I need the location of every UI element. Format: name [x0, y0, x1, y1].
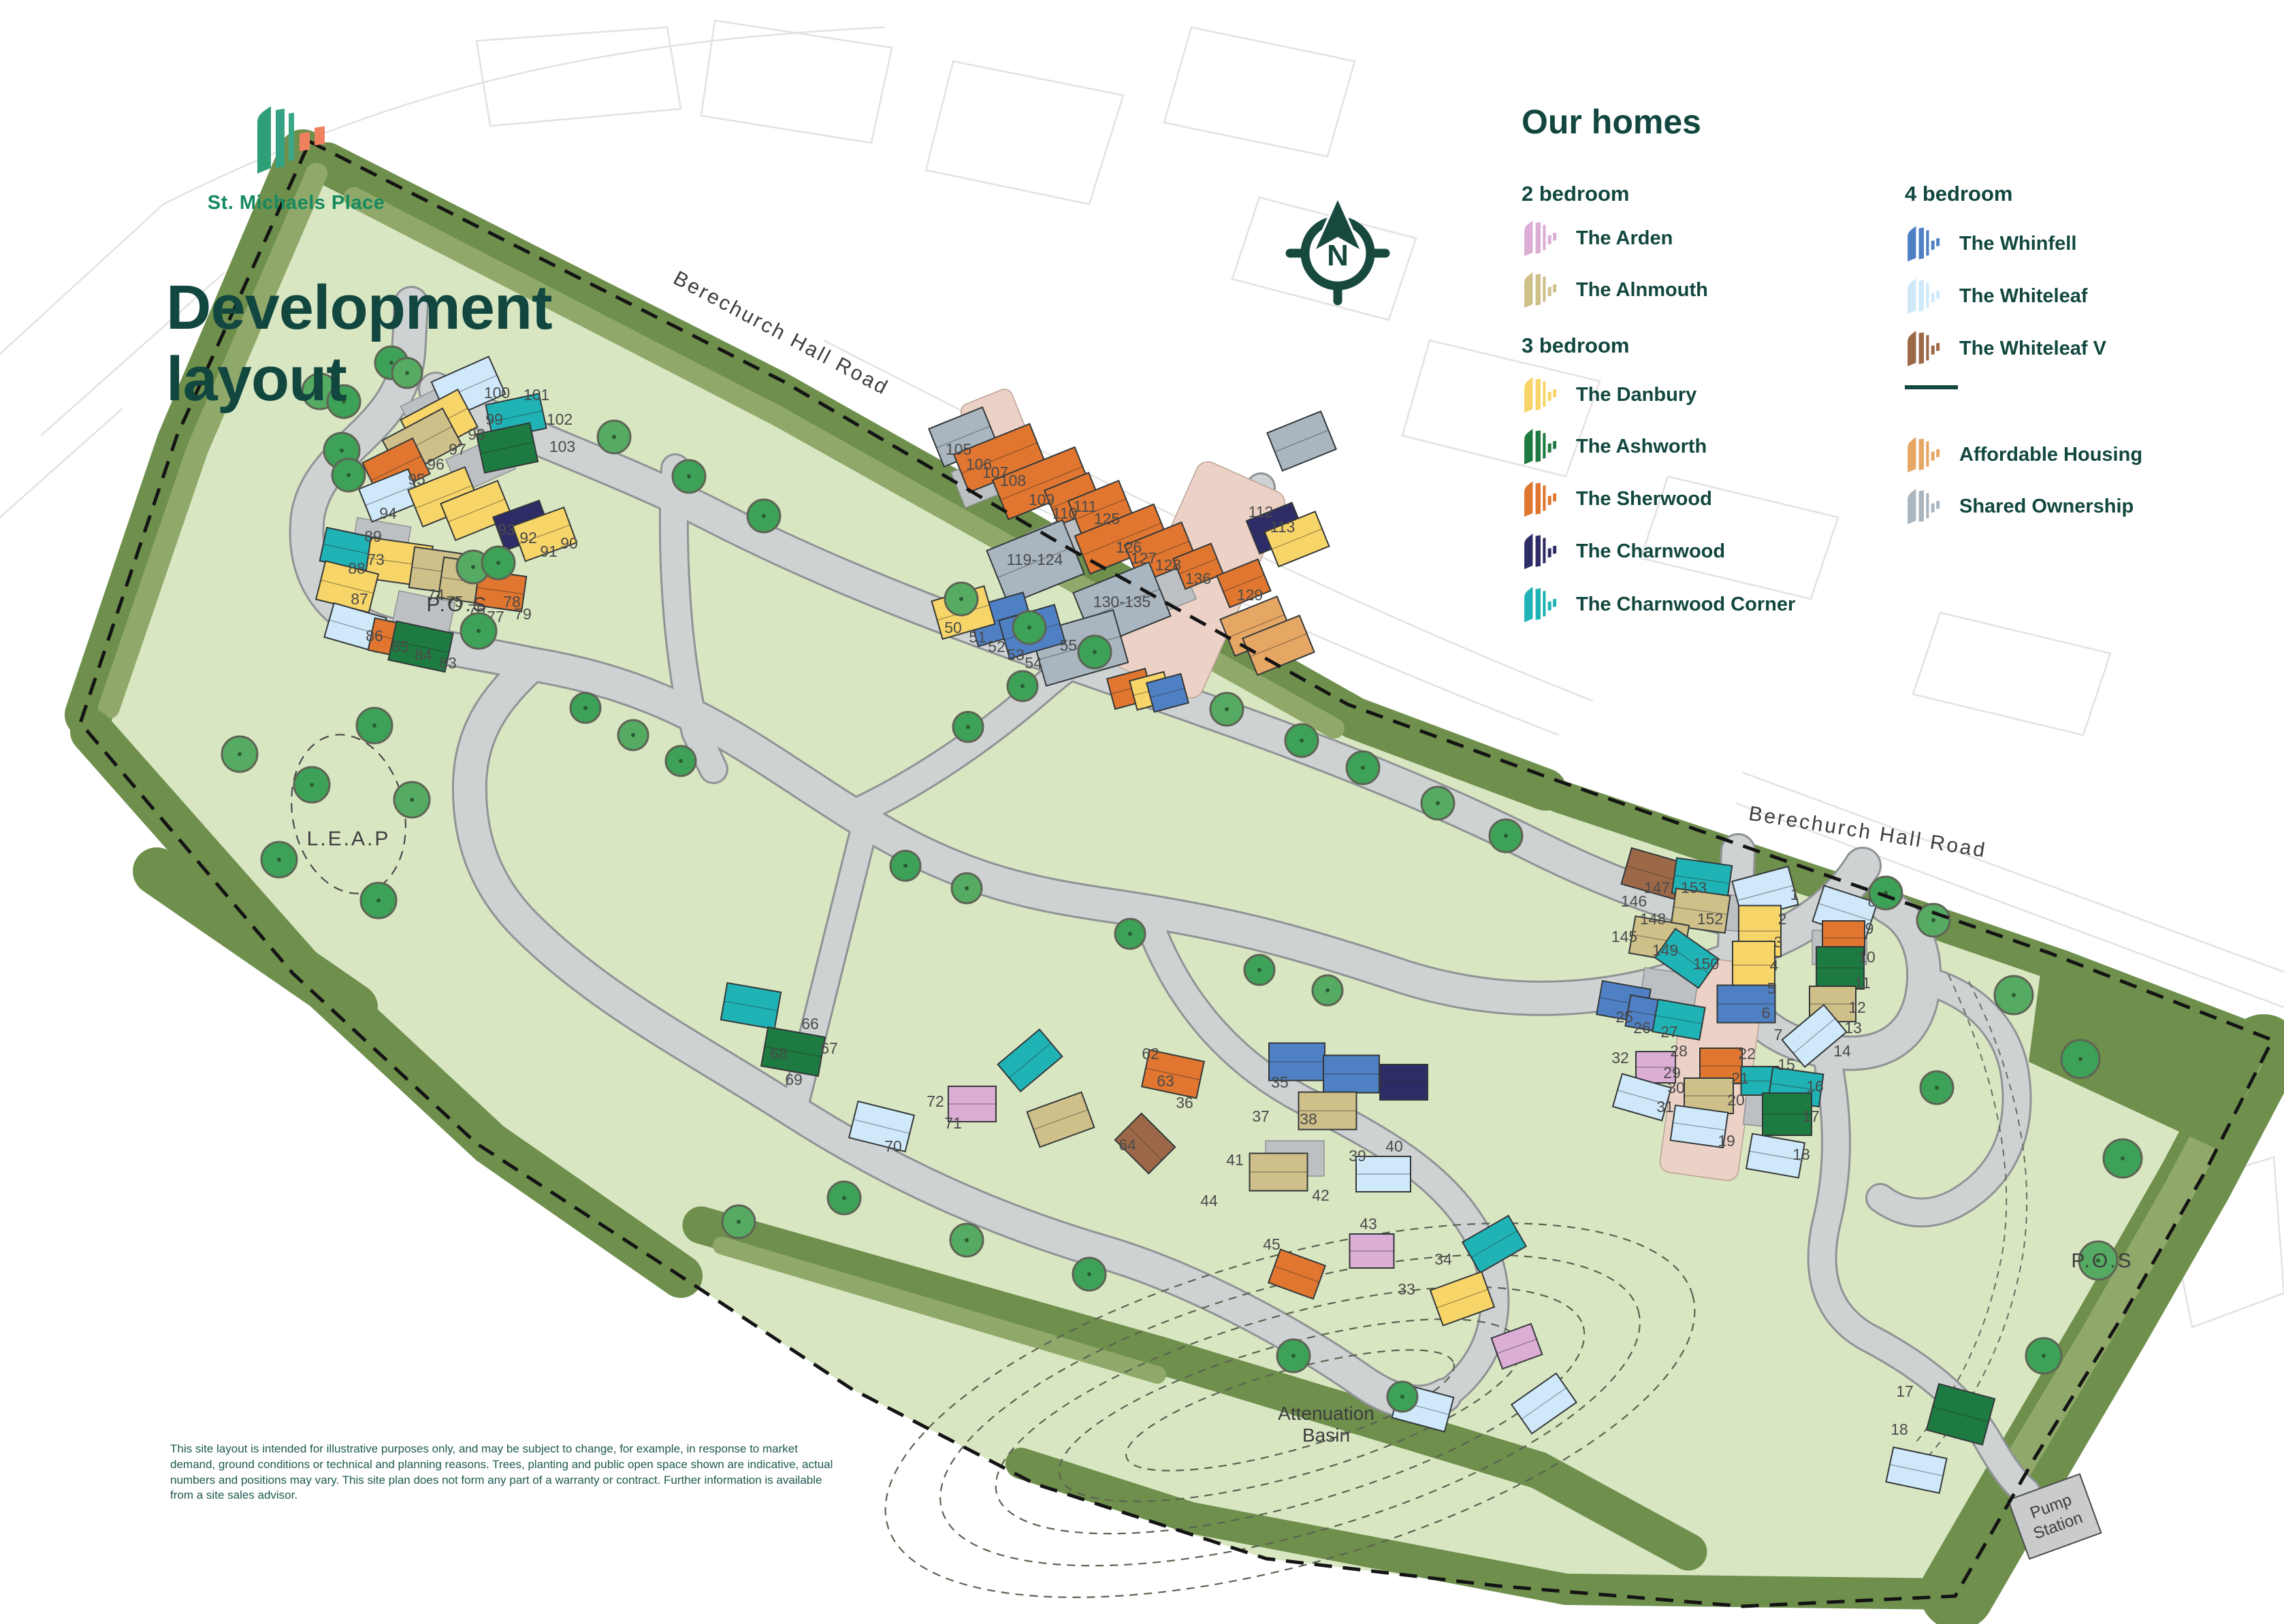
plot-number: 92: [519, 529, 537, 547]
plot-number: 17: [1802, 1107, 1820, 1125]
legend-label: The Alnmouth: [1560, 279, 1708, 302]
tree-center-dot: [1225, 707, 1229, 711]
house-type-icon-cc: [1522, 582, 1560, 627]
plot-number: 15: [1778, 1056, 1795, 1073]
legend-divider: [1905, 385, 1958, 389]
house-type-icon-wf: [1905, 221, 1943, 266]
plot-number: 26: [1633, 1019, 1651, 1037]
plot-number: 13: [1844, 1019, 1862, 1037]
plot-number: 119-124: [1007, 551, 1063, 568]
plot-number: 9: [1865, 920, 1874, 937]
page-title-line1: Development: [166, 272, 552, 344]
plot-number: 70: [884, 1137, 902, 1155]
plot-number: 127: [1131, 549, 1157, 567]
legend-section-header: 4 bedroom: [1905, 172, 2012, 216]
compass-n-label: N: [1327, 239, 1349, 272]
tree-center-dot: [1931, 918, 1935, 922]
plot-number: 36: [1176, 1094, 1193, 1111]
plot-number: 62: [1142, 1045, 1159, 1062]
plot-number: 21: [1731, 1069, 1749, 1087]
plot-number: 148: [1640, 910, 1666, 928]
legend-label: The Ashworth: [1560, 436, 1707, 458]
tree-center-dot: [238, 752, 242, 756]
legend-label: 4 bedroom: [1905, 182, 2012, 206]
plot-number: 87: [351, 590, 368, 608]
plot-number: 3: [1774, 933, 1783, 951]
plot-number: 86: [366, 627, 383, 645]
plot-number: 28: [1670, 1042, 1688, 1060]
house-type-icon-da: [1522, 372, 1560, 417]
plot-number: 10: [1858, 948, 1876, 966]
plot-number: 136: [1185, 570, 1211, 587]
plot-number: 72: [927, 1092, 944, 1110]
legend-label: The Charnwood Corner: [1560, 594, 1795, 616]
plot-number: 14: [1833, 1042, 1851, 1060]
legend-item-wv: The Whiteleaf V: [1905, 327, 2106, 370]
legend-item-al: The Alnmouth: [1522, 268, 1708, 312]
tree-center-dot: [959, 597, 963, 601]
plot-number: 103: [549, 438, 575, 455]
house-type-icon-af: [1905, 432, 1943, 477]
legend-heading: Our homes: [1522, 102, 1701, 142]
plot-number: 7: [1774, 1026, 1783, 1043]
plot-number: 4: [1770, 956, 1779, 974]
legend-label: The Sherwood: [1560, 488, 1712, 510]
house-type-icon-wl: [1905, 274, 1943, 319]
plot-number: 113: [1270, 518, 1296, 536]
plot-number: 147: [1644, 879, 1670, 896]
tree-center-dot: [583, 706, 588, 710]
plot-number: 43: [1360, 1215, 1377, 1233]
house-type-icon-wv: [1905, 326, 1943, 371]
tree-center-dot: [471, 565, 475, 569]
legend-item-cc: The Charnwood Corner: [1522, 583, 1795, 626]
tree-center-dot: [477, 629, 481, 633]
tree-center-dot: [2042, 1354, 2046, 1358]
plot-number: 109: [1029, 491, 1055, 508]
plot-number: 129: [1237, 586, 1263, 604]
legend-item-af: Affordable Housing: [1905, 433, 2142, 476]
plot-number: 2: [1778, 910, 1787, 928]
plot-number: 153: [1681, 879, 1707, 896]
brand-name: St. Michaels Place: [204, 192, 388, 214]
plot-number: 11: [1854, 974, 1871, 992]
plot-number: 66: [801, 1015, 819, 1033]
tree-center-dot: [1257, 968, 1261, 972]
legend-label: 2 bedroom: [1522, 182, 1629, 206]
plot-number: 19: [1718, 1132, 1735, 1150]
plot-number: 39: [1349, 1147, 1366, 1165]
compass-icon: N: [1290, 200, 1385, 301]
plot-number: 149: [1652, 941, 1678, 959]
legend-item-so: Shared Ownership: [1905, 485, 2134, 528]
tree-center-dot: [842, 1196, 846, 1200]
legend-label: The Danbury: [1560, 384, 1696, 406]
brand-logo-icon: [245, 101, 347, 179]
plot-number: 64: [1119, 1136, 1136, 1154]
plot-number: 85: [391, 638, 409, 655]
page-title: Development layout: [166, 272, 552, 415]
tree-center-dot: [1935, 1086, 1939, 1090]
tree-center-dot: [965, 1238, 969, 1242]
legend-label: The Charnwood: [1560, 540, 1725, 563]
plot-number: 150: [1693, 955, 1719, 973]
plot-number: 34: [1434, 1250, 1452, 1268]
tree-center-dot: [2012, 993, 2016, 997]
legend-item-sh: The Sherwood: [1522, 477, 1712, 521]
tree-center-dot: [496, 561, 500, 565]
house-type-icon-sh: [1522, 476, 1560, 521]
tree-center-dot: [965, 886, 969, 890]
legend-item-as: The Ashworth: [1522, 425, 1707, 468]
plot-number: 41: [1226, 1151, 1244, 1169]
legend-item-ch: The Charnwood: [1522, 530, 1725, 573]
plot-number: 51: [969, 628, 986, 646]
house-type-icon-as: [1522, 424, 1560, 469]
plot-number: 128: [1155, 556, 1181, 574]
tree-center-dot: [277, 858, 281, 862]
disclaimer-text: This site layout is intended for illustr…: [170, 1442, 841, 1504]
tree-center-dot: [762, 514, 766, 518]
legend-label: The Arden: [1560, 227, 1673, 250]
tree-center-dot: [1504, 834, 1508, 838]
tree-center-dot: [310, 783, 314, 787]
plot-number: 18: [1891, 1420, 1908, 1438]
house-type-icon-ch: [1522, 529, 1560, 574]
tree-center-dot: [1436, 801, 1440, 805]
plot-number: 93: [498, 521, 515, 538]
plot-number: 69: [785, 1071, 803, 1088]
pos-label-2: P.O.S: [2071, 1250, 2133, 1272]
legend-label: The Whinfell: [1943, 233, 2076, 255]
attenuation-label-2: Basin: [1302, 1425, 1350, 1446]
plot-number: 67: [820, 1039, 838, 1057]
plot-number: 5: [1767, 979, 1776, 997]
tree-center-dot: [2078, 1057, 2082, 1061]
tree-center-dot: [1027, 626, 1031, 630]
legend-item-ar: The Arden: [1522, 216, 1673, 260]
plot-number: 25: [1615, 1008, 1633, 1026]
tree-center-dot: [372, 724, 376, 728]
tree-center-dot: [347, 473, 351, 477]
plot-number: 53: [1007, 646, 1025, 664]
tree-center-dot: [1400, 1395, 1404, 1399]
plot-number: 32: [1611, 1049, 1629, 1067]
tree-center-dot: [376, 898, 381, 903]
tree-center-dot: [679, 759, 683, 763]
plot-number: 18: [1792, 1146, 1810, 1163]
tree-center-dot: [1325, 988, 1330, 992]
plot-number: 108: [1000, 472, 1026, 489]
plot-number: 27: [1660, 1023, 1678, 1041]
tree-center-dot: [340, 449, 344, 453]
plot-number: 31: [1656, 1098, 1674, 1116]
plot-number: 17: [1896, 1382, 1914, 1400]
tree-center-dot: [737, 1220, 741, 1224]
plot-number: 52: [988, 638, 1006, 655]
plot-number: 35: [1271, 1073, 1289, 1091]
tree-center-dot: [1020, 684, 1025, 688]
legend-item-da: The Danbury: [1522, 373, 1696, 417]
plot-number: 79: [514, 605, 532, 623]
legend-item-wl: The Whiteleaf: [1905, 274, 2088, 318]
plot-number: 42: [1312, 1186, 1330, 1204]
legend-label: The Whiteleaf V: [1943, 338, 2106, 360]
tree-center-dot: [1291, 1354, 1296, 1358]
pos-label-1: P.O.S: [426, 594, 488, 616]
plot-number: 91: [540, 542, 558, 560]
legend-label: Affordable Housing: [1943, 444, 2142, 466]
plot-number: 88: [348, 559, 366, 577]
plot-number: 83: [439, 654, 457, 672]
plot-number: 98: [468, 425, 485, 443]
plot-number: 37: [1252, 1107, 1270, 1125]
legend-item-wf: The Whinfell: [1905, 222, 2076, 265]
legend-section-header: 2 bedroom: [1522, 172, 1629, 216]
plot-number: 68: [770, 1045, 788, 1062]
plot-number: 130-135: [1093, 593, 1151, 611]
plot-number: 71: [944, 1114, 962, 1132]
tree-center-dot: [612, 435, 616, 439]
legend-label: 3 bedroom: [1522, 334, 1629, 358]
plot-number: 6: [1762, 1004, 1771, 1022]
tree-center-dot: [1361, 766, 1365, 770]
legend-label: Shared Ownership: [1943, 496, 2134, 518]
attenuation-label-1: Attenuation: [1278, 1403, 1374, 1424]
tree-center-dot: [1300, 738, 1304, 743]
plot-number: 97: [449, 440, 466, 458]
legend-label: The Whiteleaf: [1943, 285, 2088, 308]
plot-number: 89: [364, 527, 382, 545]
plot-number: 145: [1611, 928, 1637, 945]
tree-center-dot: [410, 798, 414, 802]
plot-number: 90: [560, 534, 578, 552]
house-type-icon-al: [1522, 267, 1560, 312]
plot-number: 50: [944, 619, 962, 636]
plot-number: 30: [1667, 1079, 1685, 1097]
plot-number: 73: [367, 551, 385, 568]
plot-number: 40: [1385, 1137, 1403, 1155]
plot-number: 1: [1790, 886, 1799, 903]
tree-center-dot: [2121, 1156, 2125, 1160]
plot-number: 94: [379, 504, 397, 522]
tree-center-dot: [1128, 932, 1132, 936]
plot-number: 146: [1621, 892, 1647, 910]
tree-center-dot: [966, 725, 970, 729]
plot-number: 96: [427, 455, 445, 473]
legend-section-header: 3 bedroom: [1522, 324, 1629, 368]
plot-number: 152: [1697, 910, 1723, 928]
plot-number: 54: [1025, 654, 1042, 672]
plot-number: 63: [1157, 1072, 1174, 1090]
plot-number: 38: [1300, 1110, 1317, 1128]
tree-center-dot: [687, 474, 691, 478]
plot-number: 22: [1738, 1045, 1756, 1062]
tree-center-dot: [1087, 1272, 1091, 1276]
plot-number: 95: [408, 470, 425, 488]
tree-center-dot: [903, 864, 907, 868]
plot-number: 45: [1263, 1235, 1281, 1253]
plot-number: 12: [1848, 998, 1866, 1016]
plot-number: 84: [415, 646, 432, 664]
plot-number: 44: [1200, 1192, 1218, 1209]
page-title-line2: layout: [166, 344, 552, 415]
plot-number: 125: [1094, 510, 1120, 527]
house-type-icon-ar: [1522, 216, 1560, 261]
tree-center-dot: [631, 733, 635, 737]
plot-number: 16: [1806, 1077, 1824, 1095]
house-type-icon-so: [1905, 484, 1943, 529]
brand-block: St. Michaels Place: [204, 101, 388, 214]
tree-center-dot: [1093, 650, 1097, 654]
plot-number: 20: [1727, 1091, 1745, 1109]
leap-label: L.E.A.P: [307, 828, 391, 850]
plot-number: 33: [1398, 1280, 1415, 1298]
